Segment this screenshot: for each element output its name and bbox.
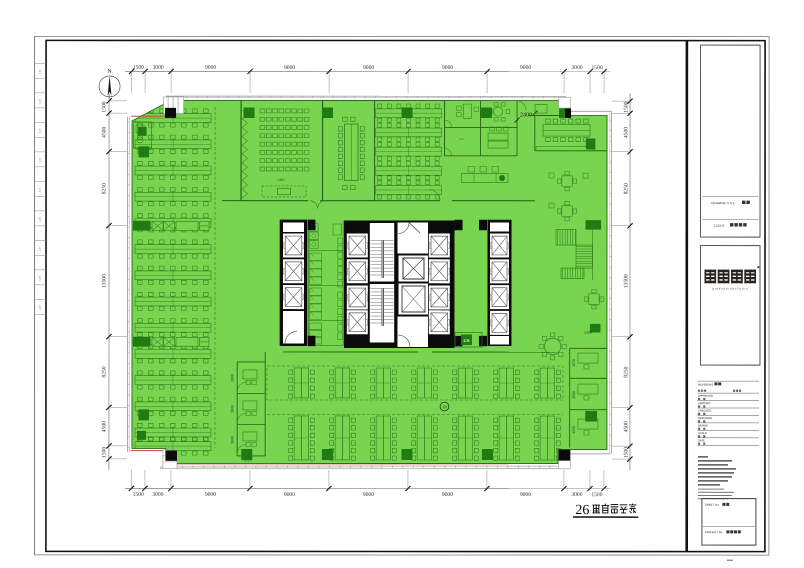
- svg-text:8250: 8250: [624, 183, 630, 194]
- svg-text:9000: 9000: [363, 492, 374, 498]
- svg-text:9000: 9000: [205, 492, 216, 498]
- svg-text:REVISIONS: REVISIONS: [698, 383, 713, 387]
- svg-text:18: 18: [442, 404, 446, 409]
- svg-text:1500: 1500: [133, 65, 144, 71]
- svg-text:8250: 8250: [101, 366, 107, 377]
- svg-text:1500: 1500: [133, 492, 144, 498]
- svg-text:1500: 1500: [623, 447, 629, 458]
- svg-text:APPROVED: APPROVED: [698, 395, 713, 398]
- svg-text:4500: 4500: [101, 421, 107, 432]
- svg-text:3000: 3000: [229, 436, 234, 444]
- svg-text:9000: 9000: [284, 492, 295, 498]
- svg-text:9000: 9000: [520, 65, 531, 71]
- svg-text:A-09: A-09: [39, 305, 42, 311]
- svg-text:1500: 1500: [591, 492, 602, 498]
- svg-text:VERIFIED: VERIFIED: [698, 402, 710, 405]
- svg-text:CLIENT: CLIENT: [714, 224, 725, 228]
- svg-text:4500: 4500: [623, 421, 629, 432]
- svg-text:9000: 9000: [205, 65, 216, 71]
- svg-text:9P L: 9P L: [459, 138, 465, 141]
- svg-text:Q I H E D E S I G N S T U D I: Q I H E D E S I G N S T U D I O: [712, 288, 748, 291]
- svg-text:DRAWN: DRAWN: [698, 425, 708, 428]
- svg-text:3250: 3250: [572, 426, 576, 434]
- svg-text:3000: 3000: [152, 65, 163, 71]
- svg-text:3500: 3500: [584, 331, 592, 335]
- svg-text:3500: 3500: [572, 391, 576, 399]
- svg-text:8250: 8250: [623, 366, 629, 377]
- svg-text:3000: 3000: [571, 65, 582, 71]
- svg-text:9000: 9000: [442, 65, 453, 71]
- svg-text:3000: 3000: [152, 492, 163, 498]
- svg-text:3570: 3570: [572, 359, 576, 367]
- svg-text:9000: 9000: [363, 65, 374, 71]
- svg-text:DESIGNER: DESIGNER: [698, 417, 712, 420]
- svg-text:9000: 9000: [284, 65, 295, 71]
- svg-text:13500: 13500: [623, 274, 629, 288]
- svg-text:13500: 13500: [101, 274, 107, 288]
- svg-text:A-06: A-06: [39, 216, 42, 222]
- svg-text:4500: 4500: [102, 127, 108, 138]
- svg-text:PROJECT No.: PROJECT No.: [705, 530, 723, 534]
- svg-text:8250: 8250: [102, 183, 108, 194]
- svg-text:N: N: [107, 69, 112, 75]
- svg-text:A-02: A-02: [39, 98, 42, 104]
- svg-text:GN: GN: [463, 338, 469, 343]
- svg-text:SCALE: SCALE: [698, 432, 707, 435]
- svg-text:A-01: A-01: [39, 69, 42, 75]
- svg-text:4500: 4500: [624, 127, 630, 138]
- svg-text:CHECKED: CHECKED: [698, 410, 711, 413]
- svg-text:A-03: A-03: [39, 128, 42, 134]
- svg-text:9000: 9000: [442, 492, 453, 498]
- svg-text:1500: 1500: [102, 101, 108, 112]
- svg-text:26: 26: [575, 503, 589, 518]
- svg-text:UMP: UMP: [277, 178, 284, 182]
- svg-text:A-08: A-08: [39, 275, 42, 281]
- svg-text:A-05: A-05: [39, 187, 42, 193]
- svg-text:DRAWING TITLE: DRAWING TITLE: [711, 201, 734, 205]
- svg-text:A-07: A-07: [39, 246, 42, 252]
- svg-text:3000: 3000: [229, 374, 234, 382]
- svg-text:1500: 1500: [101, 447, 107, 458]
- svg-text:SHEET No.: SHEET No.: [705, 503, 720, 507]
- svg-text:3000: 3000: [571, 492, 582, 498]
- svg-text:9000: 9000: [520, 492, 531, 498]
- svg-text:3000: 3000: [229, 405, 234, 413]
- svg-text:DATE: DATE: [698, 439, 705, 442]
- svg-text:A-04: A-04: [39, 157, 42, 163]
- svg-text:1500: 1500: [624, 101, 630, 112]
- svg-text:1500: 1500: [591, 65, 602, 71]
